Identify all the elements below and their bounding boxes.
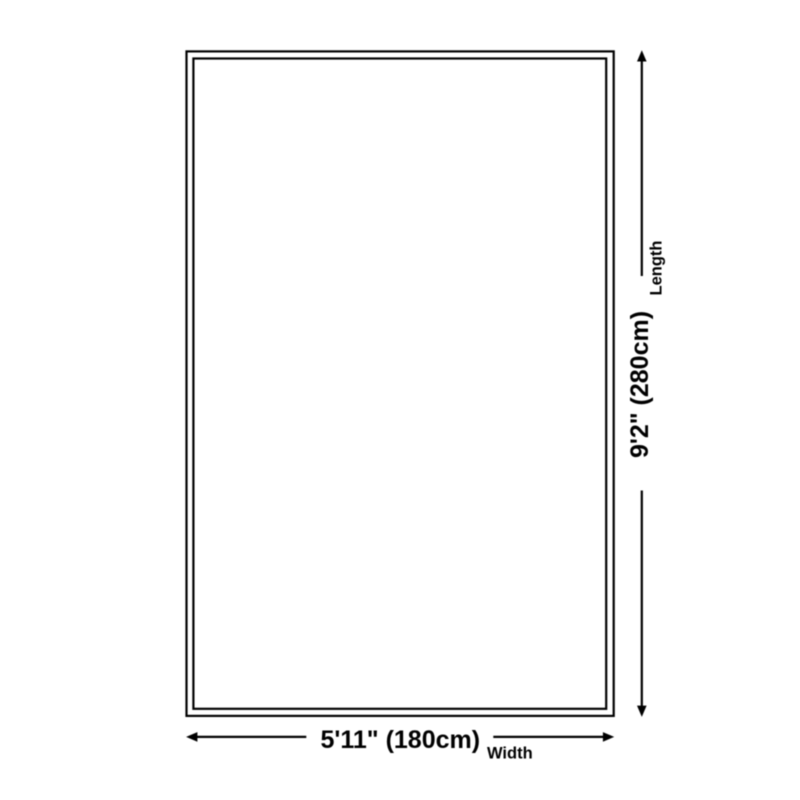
svg-text:Length: Length — [648, 241, 666, 296]
svg-text:9'2" (280cm): 9'2" (280cm) — [626, 311, 654, 458]
svg-text:Width: Width — [487, 745, 533, 763]
svg-text:5'11" (180cm): 5'11" (180cm) — [321, 726, 481, 754]
